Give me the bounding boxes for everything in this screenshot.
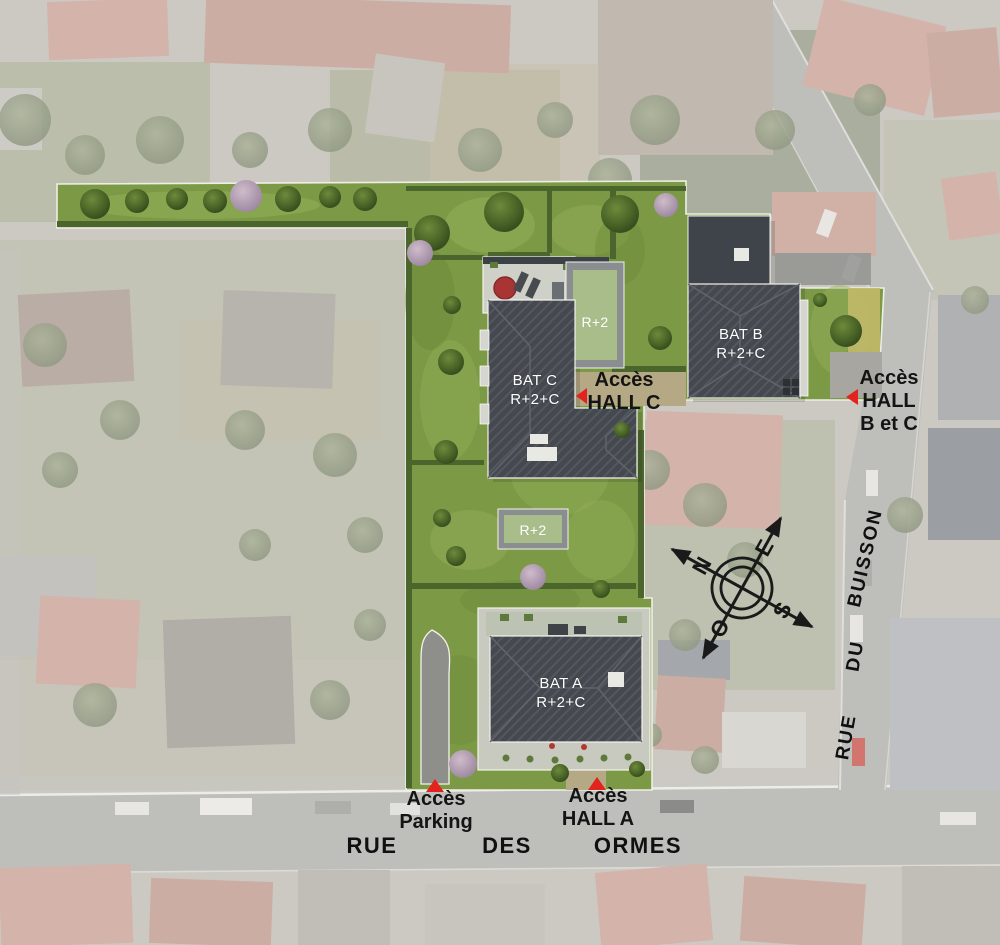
street-name-ormes: ORMES	[594, 833, 682, 859]
building-floors: R+2+C	[510, 390, 560, 409]
site-plan-aerial-view: N E S O BAT C R+2+C BAT B R+2+C BAT A R+…	[0, 0, 1000, 945]
building-label-bat-c: BAT C R+2+C	[510, 371, 560, 409]
balcony	[480, 404, 489, 424]
flower-pot	[549, 743, 555, 749]
building-name: BAT A	[536, 674, 586, 693]
balcony-strip	[800, 300, 808, 396]
building-label-bat-b: BAT B R+2+C	[716, 325, 766, 363]
building-label-bat-a: BAT A R+2+C	[536, 674, 586, 712]
roof-label-r2-south: R+2	[520, 522, 547, 538]
building-floors: R+2+C	[536, 693, 586, 712]
balcony	[480, 330, 489, 350]
balcony	[480, 366, 489, 386]
umbrella-icon	[494, 277, 516, 299]
terrace-table	[552, 282, 564, 302]
skylight	[527, 447, 557, 461]
building-bat-c	[480, 257, 637, 478]
skylight	[734, 248, 749, 261]
access-label-hall-c: Accès HALL C	[588, 369, 661, 415]
site-plan-graphic: N E S O	[0, 0, 1000, 945]
terrace-furniture	[548, 624, 568, 635]
building-floors: R+2+C	[716, 344, 766, 363]
building-wing-bat-b	[688, 216, 770, 284]
street-name-rue: RUE	[347, 833, 398, 859]
skylight	[530, 434, 548, 444]
access-label-hall-b-c: Accès HALL B et C	[860, 367, 919, 435]
street-name-des: DES	[482, 833, 532, 859]
roof-label-r2-north: R+2	[582, 314, 609, 330]
access-label-hall-a: Accès HALL A	[562, 785, 634, 831]
building-name: BAT C	[510, 371, 560, 390]
parking-ramp	[421, 630, 450, 784]
skylight	[608, 672, 624, 687]
terrace-furniture	[574, 626, 586, 634]
building-name: BAT B	[716, 325, 766, 344]
flower-pot	[581, 744, 587, 750]
access-label-parking: Accès Parking	[399, 788, 472, 834]
